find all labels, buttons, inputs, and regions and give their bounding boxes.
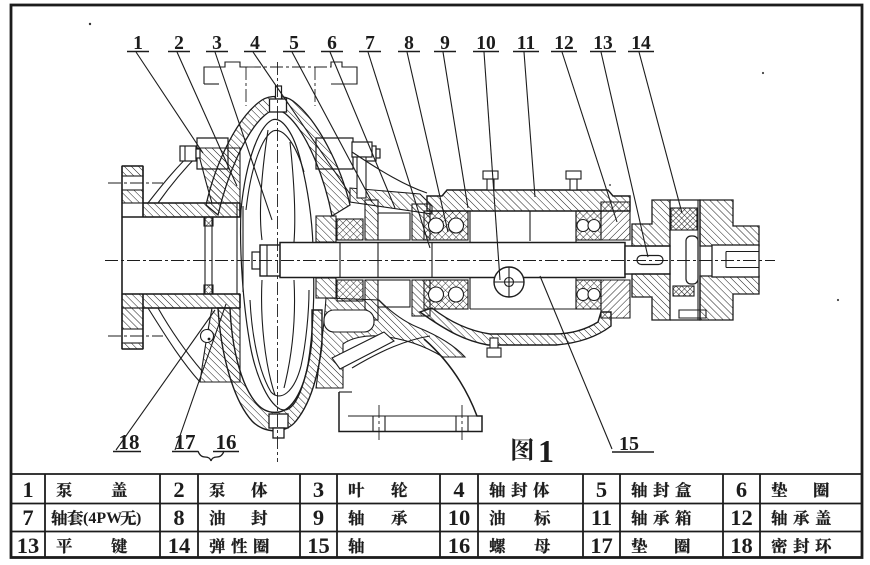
svg-text:14: 14 [168,533,191,558]
svg-text:1: 1 [22,477,33,502]
svg-text:(4PW: (4PW [83,510,122,527]
svg-text:17: 17 [590,533,613,558]
svg-text:10: 10 [448,505,471,530]
svg-text:2: 2 [173,477,184,502]
svg-text:18: 18 [730,533,753,558]
svg-text:6: 6 [736,477,747,502]
svg-text:1: 1 [538,433,554,469]
svg-text:12: 12 [730,505,753,530]
svg-text:16: 16 [448,533,471,558]
svg-text:8: 8 [173,505,184,530]
svg-text:11: 11 [591,505,612,530]
svg-text:13: 13 [17,533,40,558]
svg-text:15: 15 [307,533,330,558]
svg-text:9: 9 [313,505,324,530]
svg-text:7: 7 [22,505,33,530]
svg-text:4: 4 [453,477,464,502]
svg-text:3: 3 [313,477,324,502]
svg-text:16: 16 [216,430,237,454]
svg-text:): ) [136,510,141,527]
svg-text:5: 5 [596,477,607,502]
